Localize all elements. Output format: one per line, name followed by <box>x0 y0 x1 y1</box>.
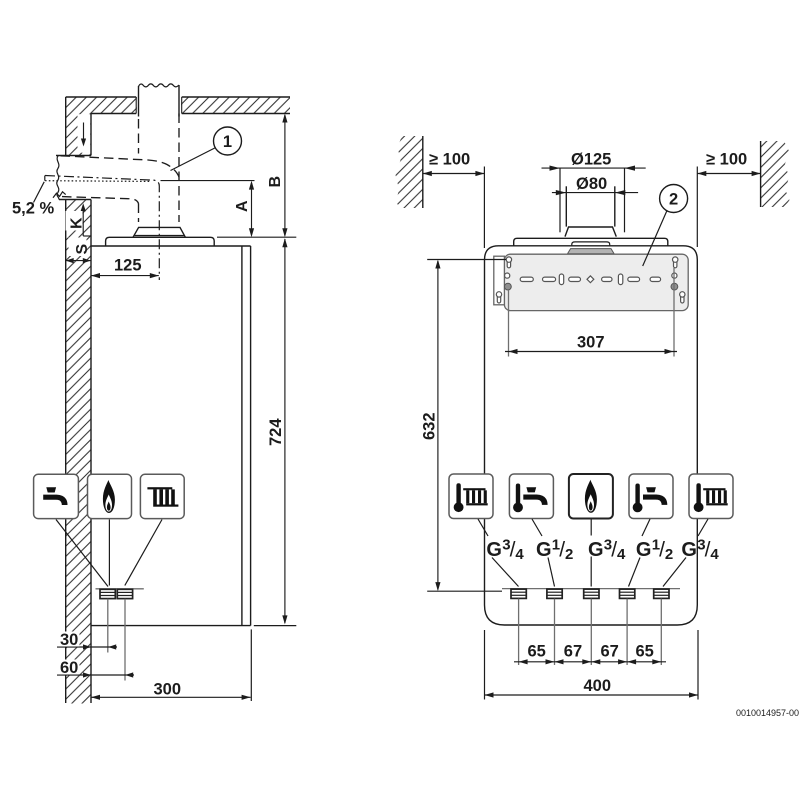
svg-text:A: A <box>234 200 251 212</box>
svg-text:2: 2 <box>669 191 678 209</box>
svg-text:724: 724 <box>267 418 285 446</box>
svg-text:65: 65 <box>528 643 546 661</box>
svg-text:1: 1 <box>223 133 232 151</box>
svg-text:65: 65 <box>636 643 654 661</box>
svg-text:Ø80: Ø80 <box>576 175 607 193</box>
svg-text:K: K <box>69 217 86 229</box>
svg-text:5,2 %: 5,2 % <box>12 200 55 218</box>
svg-text:632: 632 <box>421 412 439 440</box>
svg-text:67: 67 <box>564 643 582 661</box>
svg-text:G: G <box>588 539 604 561</box>
svg-text:125: 125 <box>114 257 142 275</box>
svg-text:B: B <box>267 176 284 188</box>
svg-text:≥ 100: ≥ 100 <box>429 151 470 169</box>
svg-text:60: 60 <box>60 659 78 677</box>
svg-text:G: G <box>486 539 502 561</box>
svg-text:67: 67 <box>601 643 619 661</box>
svg-text:307: 307 <box>577 334 605 352</box>
svg-text:G: G <box>536 539 552 561</box>
svg-text:0010014957-00: 0010014957-00 <box>736 708 799 718</box>
svg-text:300: 300 <box>154 681 182 699</box>
svg-text:4: 4 <box>710 546 719 563</box>
svg-text:4: 4 <box>515 546 524 563</box>
svg-text:4: 4 <box>617 546 626 563</box>
svg-text:2: 2 <box>565 546 573 563</box>
svg-text:G: G <box>636 539 652 561</box>
svg-text:Ø125: Ø125 <box>571 150 611 168</box>
svg-text:2: 2 <box>665 546 673 563</box>
svg-text:≥ 100: ≥ 100 <box>706 151 747 169</box>
svg-text:G: G <box>681 539 697 561</box>
svg-text:30: 30 <box>60 631 78 649</box>
svg-text:400: 400 <box>584 677 612 695</box>
svg-text:S: S <box>74 244 91 255</box>
